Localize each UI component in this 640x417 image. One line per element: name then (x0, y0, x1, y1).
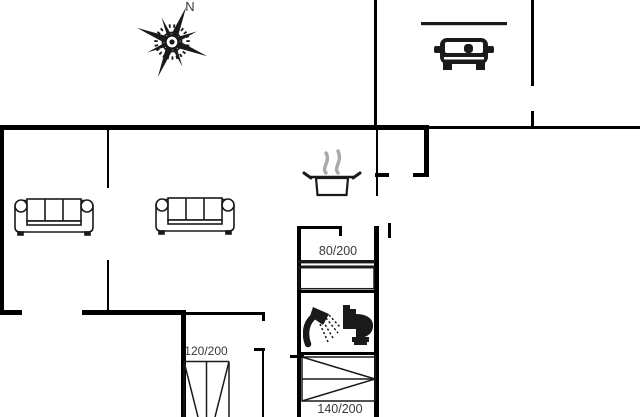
sofa-icon (12, 196, 96, 238)
wall-top-right-thin (429, 126, 640, 129)
wall-carport-right-lower (531, 111, 534, 129)
bed-120-icon (182, 360, 232, 417)
floor-plan: N (0, 0, 640, 417)
wall-bedroom80-top (297, 226, 342, 229)
wall-top-exterior (0, 125, 429, 130)
wall-lounge-partition-upper (107, 130, 109, 188)
wall-east-door-stub (388, 223, 391, 238)
cooking-pot-steam-icon (302, 146, 362, 198)
wall-east-jut (424, 125, 429, 177)
wall-left-exterior (0, 125, 4, 315)
bed-size-label: 140/200 (301, 403, 379, 416)
bed-size-label: 80/200 (299, 245, 377, 258)
wall-room120-top-tick (262, 312, 265, 321)
wall-carport-right-upper (531, 0, 534, 86)
wall-room120-top (186, 312, 264, 315)
wall-bottom-left (82, 310, 186, 315)
wall-hall-tick (254, 348, 265, 351)
compass-rose-icon (132, 2, 212, 82)
wall-kitchen-partition (376, 130, 378, 196)
wall-bedroom80-top-tick (339, 226, 342, 236)
shower-icon (303, 305, 341, 348)
bed-140-icon (301, 355, 379, 405)
toilet-icon (341, 305, 377, 347)
car-icon (421, 18, 507, 76)
wall-lounge-partition-lower (107, 260, 109, 312)
bed-size-label: 120/200 (179, 345, 233, 358)
wall-hall (262, 348, 264, 417)
wall-bottom-left-stub (0, 310, 22, 315)
sofa-icon (153, 195, 237, 237)
wall-east-jut-foot (413, 173, 429, 177)
bed-80-icon (297, 259, 377, 294)
wall-carport-left (374, 0, 377, 126)
